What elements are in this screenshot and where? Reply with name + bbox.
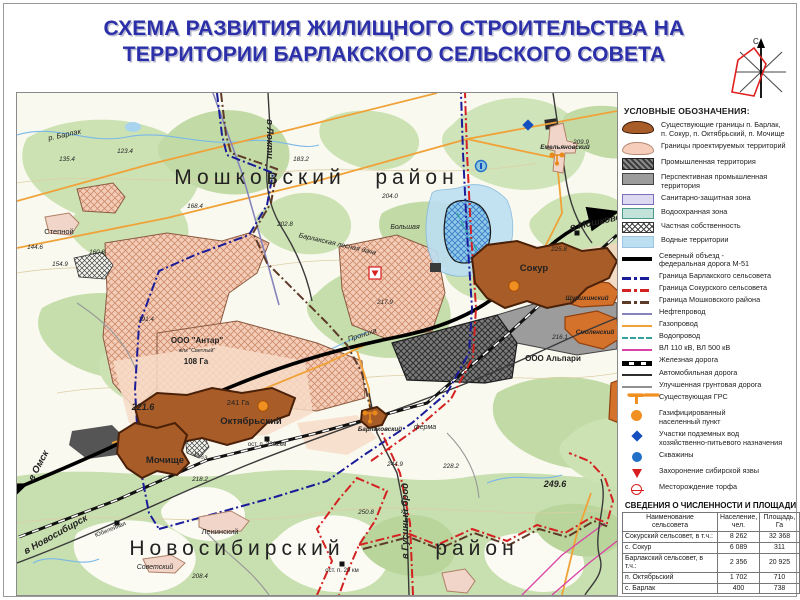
legend-item-label: Существующая ГРС [659,393,728,402]
legend-item: Водопровод [622,332,799,341]
cell-area: 738 [760,583,800,594]
map-label: 225.8 [550,246,567,253]
legend-swatch-a-san [622,194,654,205]
cell-name: с. Барлак [623,583,718,594]
map-label: 209.9 [572,139,589,146]
legend-swatch-s-well [622,451,652,464]
legend-swatch-s-anthrax [622,467,652,480]
legend-item: Газифицированный населенный пункт [622,409,799,427]
map-label: 123.4 [117,148,133,155]
legend-swatch-l-bdist [622,301,652,304]
map-label: 191.4 [138,316,154,323]
map-label: 244.9 [386,461,403,468]
map-canvas: МошковскийрайонНовосибирскийрайонСокурОк… [16,92,618,596]
map-label: 168.4 [187,203,203,210]
map-label: Смоленский [576,328,615,336]
legend-swatch-l-m51 [622,257,652,261]
table-row: с. Сокур6 089311 [623,542,800,553]
side-panel: УСЛОВНЫЕ ОБОЗНАЧЕНИЯ: Существующие грани… [622,106,799,594]
legend-item-label: Железная дорога [659,356,718,365]
cell-area: 32 368 [760,531,800,542]
map-symbol-gas-icon [509,281,519,291]
map-label: район [375,166,458,189]
cell-population: 6 089 [718,542,760,553]
legend-item-label: Граница Мошковского района [659,296,760,305]
map-label: 228.2 [442,463,459,470]
legend-item-label: Улучшенная грунтовая дорога [659,381,761,390]
map-label: Октябрьский [220,416,282,427]
map-label: Сокур [520,263,549,274]
legend-swatch-a-exist [622,121,654,134]
map-label: в Гусиный брод [400,483,411,559]
legend-swatch-l-power [622,349,652,351]
legend-swatch-l-road [622,374,652,376]
legend-item: Улучшенная грунтовая дорога [622,381,799,390]
map-label: 216.1 [551,334,568,341]
cell-population: 400 [718,583,760,594]
compass-rose: С [726,34,794,104]
cell-name: Барлакский сельсовет, в т.ч.: [623,553,718,572]
table-row: Сокурский сельсовет, в т.ч.:8 26232 368 [623,531,800,542]
legend-item-label: Промышленная территория [661,158,756,167]
legend-item-label: Частная собственность [661,222,741,231]
legend-swatch-a-wat [622,236,654,248]
legend-swatch-s-peat [622,483,652,496]
map-label: 202.8 [276,221,293,228]
cell-name: Сокурский сельсовет, в т.ч.: [623,531,718,542]
cell-population: 1 702 [718,572,760,583]
map-symbol-well-icon [476,161,487,172]
map-label: 249.6 [543,479,568,489]
legend-item-label: Границы проектируемых территорий [661,142,786,151]
legend-item-label: Скважины [659,451,694,460]
legend-swatch-l-wpipe [622,337,652,339]
legend-swatch-l-gas [622,325,652,327]
legend-heading: УСЛОВНЫЕ ОБОЗНАЧЕНИЯ: [624,106,799,116]
map-label: район [435,537,518,560]
legend-item: Железная дорога [622,356,799,366]
legend-item: Водные территории [622,236,799,248]
legend-item: Перспективная промышленная территория [622,173,799,191]
legend-item: Месторождение торфа [622,483,799,496]
map-label: ост. п. 3362км [248,442,286,448]
legend-swatch-a-priv [622,222,654,233]
map-label: Большая [390,224,420,231]
title-line-2: ТЕРРИТОРИИ БАРЛАКСКОГО СЕЛЬСКОГО СОВЕТА [64,42,724,68]
table-header-row: Наименование сельсоветаНаселение, чел.Пл… [623,512,800,531]
legend-items: Существующие границы п. Барлак, п. Сокур… [622,121,799,496]
map-label: ж/м "Светлый" [179,347,216,354]
map-label: 160.8 [89,249,105,256]
map-label: Степной [44,227,74,236]
legend-item: Существующие границы п. Барлак, п. Сокур… [622,121,799,139]
cell-area: 311 [760,542,800,553]
table-header-cell: Население, чел. [718,512,760,531]
map-label: Мочище [146,455,184,466]
map-label: 154.9 [52,261,68,268]
map-symbol-halt-icon [340,562,345,567]
legend-item-label: Участки подземных вод хозяйственно-питье… [659,430,782,448]
legend-swatch-s-grs [622,393,652,406]
legend-item: Промышленная территория [622,158,799,170]
legend-item: Существующая ГРС [622,393,799,406]
cell-name: п. Октябрьский [623,572,718,583]
cell-population: 8 262 [718,531,760,542]
map-label: Новосибирский [129,537,344,560]
map-label: 144.6 [27,244,43,251]
legend-item-label: Перспективная промышленная территория [661,173,767,191]
map-symbol-gas-icon [258,401,268,411]
map-label: 218.2 [191,476,208,483]
legend-item: Участки подземных вод хозяйственно-питье… [622,430,799,448]
table-row: с. Барлак400738 [623,583,800,594]
map-label: 241 Га [227,398,250,407]
page: СХЕМА РАЗВИТИЯ ЖИЛИЩНОГО СТРОИТЕЛЬСТВА Н… [3,3,797,597]
legend-item: Скважины [622,451,799,464]
map-label: в Локти [264,119,275,159]
legend-item: Граница Сокурского сельсовета [622,284,799,293]
map-label: Барлаковский [358,425,402,433]
map-label: 135.4 [59,156,75,163]
map-label: 108 Га [184,357,209,366]
legend-item-label: Захоронение сибирской язвы [659,467,759,476]
legend-item: Границы проектируемых территорий [622,142,799,155]
map-label: ферма [414,424,436,431]
map-label: Советский [137,563,174,571]
map-label: 208.4 [191,573,208,580]
legend-item-label: Водные территории [661,236,728,245]
legend-item-label: Газифицированный населенный пункт [659,409,726,427]
map-label: 221.6 [131,402,156,412]
legend-swatch-a-wprot [622,208,654,219]
legend-item-label: Месторождение торфа [659,483,737,492]
legend-item-label: Северный объезд - федеральная дорога М-5… [659,252,749,270]
title-line-1: СХЕМА РАЗВИТИЯ ЖИЛИЩНОГО СТРОИТЕЛЬСТВА Н… [64,16,724,42]
legend-item-label: Газопровод [659,320,698,329]
legend-item: Граница Барлакского сельсовета [622,272,799,281]
legend-item: Санитарно-защитная зона [622,194,799,205]
cell-area: 710 [760,572,800,583]
map-symbol-halt-icon [265,437,270,442]
legend-swatch-a-pind [622,173,654,185]
legend-item-label: Граница Барлакского сельсовета [659,272,771,281]
table-header-cell: Наименование сельсовета [623,512,718,531]
map-label: ост. п. 29 км [325,568,358,574]
legend-swatch-l-dirt [622,386,652,388]
cell-name: с. Сокур [623,542,718,553]
legend-swatch-s-uwater [622,430,652,443]
map-label: ООО "Антар" [171,336,224,345]
legend-item-label: Граница Сокурского сельсовета [659,284,767,293]
map-label: Щурихинский [565,294,608,302]
legend-item: ВЛ 110 кВ, ВЛ 500 кВ [622,344,799,353]
legend-item: Нефтепровод [622,308,799,317]
legend-item-label: Санитарно-защитная зона [661,194,751,203]
legend-swatch-l-bblue [622,277,652,280]
map-label: ООО Альпари [525,354,581,363]
legend-item: Автомобильная дорога [622,369,799,378]
table-body: Сокурский сельсовет, в т.ч.:8 26232 368с… [623,531,800,594]
legend-item-label: Водопровод [659,332,700,341]
north-label: С [753,37,759,46]
legend-item-label: Водоохранная зона [661,208,727,217]
map-svg: МошковскийрайонНовосибирскийрайонСокурОк… [17,93,617,595]
map-title: СХЕМА РАЗВИТИЯ ЖИЛИЩНОГО СТРОИТЕЛЬСТВА Н… [64,16,724,69]
cell-population: 2 356 [718,553,760,572]
legend-swatch-a-ind [622,158,654,170]
map-label: Ленинский [202,527,239,536]
map-label: Мошковский [174,166,345,189]
legend-item: Граница Мошковского района [622,296,799,305]
legend-item: Захоронение сибирской язвы [622,467,799,480]
table-title: СВЕДЕНИЯ О ЧИСЛЕННОСТИ И ПЛОЩАДИ [622,501,799,510]
map-label: 217.9 [376,299,393,306]
cell-area: 20 925 [760,553,800,572]
legend-item: Водоохранная зона [622,208,799,219]
map-label: 183.2 [293,156,309,163]
map-symbol-anthrax-icon [369,267,381,279]
table-header-cell: Площадь, Га [760,512,800,531]
legend-swatch-l-oil [622,313,652,315]
table-row: п. Октябрьский1 702710 [623,572,800,583]
legend-item-label: Существующие границы п. Барлак, п. Сокур… [661,121,785,139]
map-label: 250.8 [357,509,374,516]
legend-item: Частная собственность [622,222,799,233]
legend-item-label: ВЛ 110 кВ, ВЛ 500 кВ [659,344,730,353]
map-label: 204.0 [381,193,398,200]
statistics-table: СВЕДЕНИЯ О ЧИСЛЕННОСТИ И ПЛОЩАДИ Наимено… [622,501,799,595]
legend-swatch-a-proj [622,142,654,155]
table-row: Барлакский сельсовет, в т.ч.:2 35620 925 [623,553,800,572]
legend-swatch-l-rail [622,361,652,366]
legend-item-label: Автомобильная дорога [659,369,737,378]
legend-item: Северный объезд - федеральная дорога М-5… [622,252,799,270]
legend-swatch-s-gastown [622,409,652,422]
legend-item: Газопровод [622,320,799,329]
legend-swatch-l-bred [622,289,652,292]
legend-item-label: Нефтепровод [659,308,706,317]
